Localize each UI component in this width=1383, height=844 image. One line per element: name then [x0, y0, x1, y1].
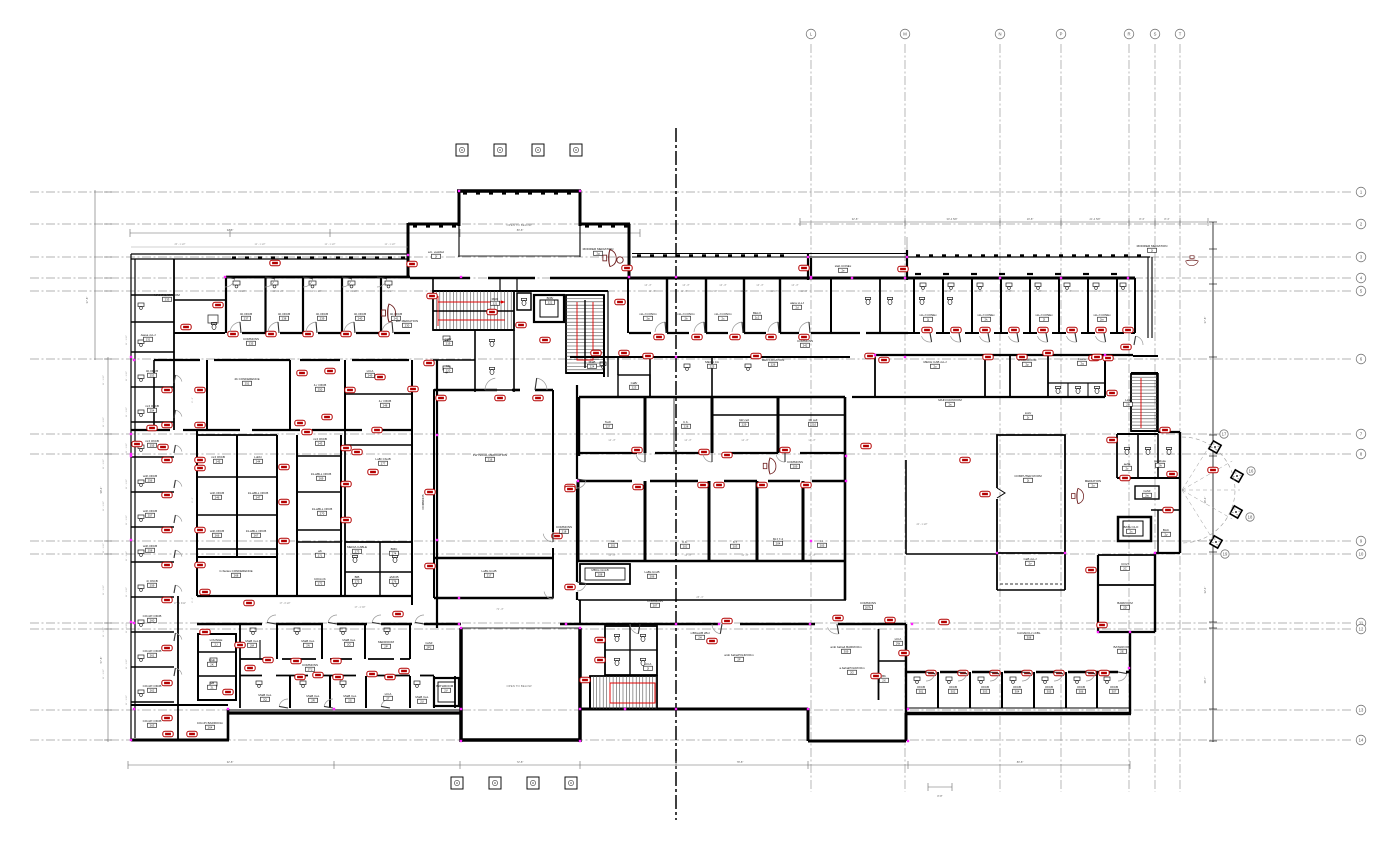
svg-text:11' - 1 1/2": 11' - 1 1/2" — [126, 479, 128, 489]
svg-text:72' - 8": 72' - 8" — [496, 609, 503, 611]
svg-text:2K: 2K — [210, 663, 214, 667]
svg-text:72'-8": 72'-8" — [517, 760, 524, 764]
svg-text:249: 249 — [368, 374, 373, 378]
svg-text:2U: 2U — [420, 700, 424, 704]
svg-text:11' - 8": 11' - 8" — [945, 291, 952, 293]
svg-text:259: 259 — [150, 584, 155, 588]
svg-text:271: 271 — [318, 554, 323, 558]
svg-text:xLLJ CONCx: xLLJ CONCx — [639, 312, 657, 316]
svg-text:N: N — [998, 32, 1001, 37]
svg-text:8' - 0": 8' - 0" — [192, 497, 194, 503]
svg-text:mrJ OfiCB: mrJ OfiCB — [145, 404, 159, 408]
svg-text:CoMr: CoMr — [425, 641, 432, 645]
svg-text:203: 203 — [733, 545, 738, 549]
svg-text:10: 10 — [1359, 552, 1364, 557]
svg-text:LaBr CfxxB: LaBr CfxxB — [375, 457, 390, 461]
svg-text:C-Suites CONFERENCE: C-Suites CONFERENCE — [219, 569, 252, 573]
svg-text:14' - 8": 14' - 8" — [684, 555, 691, 557]
svg-text:240: 240 — [358, 317, 363, 321]
svg-text:219: 219 — [446, 342, 451, 346]
svg-text:a.b. vestibul: a.b. vestibul — [428, 250, 444, 254]
svg-text:28' - 0": 28' - 0" — [696, 597, 703, 599]
svg-text:26' - 1 1/2": 26' - 1 1/2" — [175, 244, 186, 246]
svg-text:13: 13 — [1359, 708, 1364, 713]
svg-text:MEDIATION: MEDIATION — [1085, 479, 1101, 483]
svg-text:amb bahaPOLIROOm: amb bahaPOLIROOm — [724, 653, 754, 657]
svg-text:258: 258 — [148, 549, 153, 553]
svg-text:PHYSICAL MEDICATION: PHYSICAL MEDICATION — [473, 453, 507, 457]
svg-text:207: 207 — [653, 604, 658, 608]
svg-text:12' - 1 1/2": 12' - 1 1/2" — [383, 291, 394, 293]
svg-text:InLwBLL OfiCB: InLwBLL OfiCB — [311, 472, 331, 476]
svg-text:308: 308 — [1027, 636, 1032, 640]
svg-text:COmPr OfiCB: COmPr OfiCB — [143, 649, 162, 653]
svg-text:xLLJ CONCx: xLLJ CONCx — [677, 312, 695, 316]
svg-text:242: 242 — [803, 344, 808, 348]
svg-text:78'-8": 78'-8" — [737, 760, 744, 764]
svg-text:12' - 1 1/2": 12' - 1 1/2" — [347, 291, 358, 293]
svg-text:COmPr BARROOm: COmPr BARROOm — [197, 721, 224, 725]
svg-text:COmPr OfiCB: COmPr OfiCB — [143, 684, 162, 688]
svg-text:11' - 1 1/2": 11' - 1 1/2" — [126, 335, 128, 345]
svg-text:275: 275 — [355, 580, 360, 584]
svg-text:14' - 8": 14' - 8" — [808, 555, 815, 557]
svg-text:12' - 1 1/2": 12' - 1 1/2" — [255, 244, 266, 246]
svg-text:11' - 1 1/2": 11' - 1 1/2" — [126, 515, 128, 525]
svg-text:12: 12 — [1359, 627, 1364, 632]
svg-text:217: 217 — [487, 574, 492, 578]
svg-text:COMMONS: COMMONS — [243, 337, 259, 341]
svg-text:13' - 8": 13' - 8" — [791, 285, 798, 287]
svg-text:12' - 1 1/2": 12' - 1 1/2" — [325, 244, 336, 246]
svg-text:LaBs UnxB: LaBs UnxB — [644, 570, 659, 574]
svg-text:Tech: Tech — [605, 420, 612, 424]
svg-text:GR cell: GR cell — [739, 418, 749, 422]
svg-text:COMMONS: COMMONS — [556, 525, 572, 529]
svg-text:11' - 1 1/2": 11' - 1 1/2" — [126, 371, 128, 381]
svg-text:220: 220 — [446, 369, 451, 373]
svg-text:16: 16 — [1249, 469, 1254, 474]
svg-text:MiaB: MiaB — [589, 360, 596, 364]
svg-text:2d: 2d — [795, 306, 799, 310]
svg-text:2P2: 2P2 — [427, 646, 432, 650]
svg-text:with OfiCB: with OfiCB — [210, 529, 224, 533]
svg-text:COMMONS: COMMONS — [302, 663, 318, 667]
svg-text:246: 246 — [215, 496, 220, 500]
svg-text:BAC: BAC — [1163, 528, 1170, 532]
svg-text:LICA: LICA — [895, 637, 902, 641]
svg-text:a.bahaPOLIROOm: a.bahaPOLIROOm — [839, 666, 865, 670]
svg-text:251: 251 — [245, 382, 250, 386]
svg-text:225: 225 — [710, 365, 715, 369]
svg-text:11' - 1 1/2": 11' - 1 1/2" — [103, 375, 105, 385]
svg-text:11' - 1 1/2": 11' - 1 1/2" — [103, 627, 105, 637]
svg-text:8'-8": 8'-8" — [937, 794, 942, 798]
svg-text:32'-8": 32'-8" — [227, 760, 234, 764]
svg-text:243: 243 — [318, 442, 323, 446]
svg-text:226: 226 — [771, 363, 776, 367]
svg-text:MrJ 7-4: MrJ 7-4 — [773, 537, 783, 541]
svg-text:12' - 1 1/2": 12' - 1 1/2" — [273, 291, 284, 293]
svg-text:BATH CLO: BATH CLO — [1124, 525, 1139, 529]
svg-text:11' - 8": 11' - 8" — [801, 291, 808, 293]
svg-text:2E: 2E — [1120, 650, 1124, 654]
svg-text:237: 237 — [244, 317, 249, 321]
svg-text:slab CONEx: slab CONEx — [835, 264, 852, 268]
svg-text:248: 248 — [383, 404, 388, 408]
svg-text:256: 256 — [148, 479, 153, 483]
svg-text:17' - 4 7/2": 17' - 4 7/2" — [355, 607, 366, 609]
svg-text:301: 301 — [919, 690, 924, 694]
svg-text:Club: Club — [209, 658, 216, 662]
svg-text:Lishr: Lishr — [1025, 411, 1032, 415]
svg-text:aefla: aefla — [1124, 462, 1131, 466]
svg-text:MODIfiER MEDIATION: MODIfiER MEDIATION — [1137, 244, 1168, 248]
svg-text:12' - 1 1/2": 12' - 1 1/2" — [235, 291, 246, 293]
svg-text:21'-4 5/8": 21'-4 5/8" — [1090, 217, 1101, 221]
svg-text:57'-8": 57'-8" — [99, 657, 103, 664]
svg-text:277: 277 — [381, 462, 386, 466]
svg-text:i.i.: i.i. — [821, 539, 824, 543]
svg-text:228: 228 — [684, 425, 689, 429]
svg-text:207b: 207b — [865, 606, 872, 610]
svg-text:MiaB CeL: MiaB CeL — [258, 693, 272, 697]
svg-text:mrJ OfiCB: mrJ OfiCB — [145, 439, 159, 443]
svg-text:2I: 2I — [647, 667, 650, 671]
svg-text:2B: 2B — [1126, 403, 1130, 407]
svg-text:306: 306 — [1079, 690, 1084, 694]
svg-text:264: 264 — [208, 726, 213, 730]
svg-text:COMMONS: COMMONS — [647, 599, 663, 603]
svg-text:37'-8": 37'-8" — [85, 297, 89, 304]
svg-text:273: 273 — [355, 550, 360, 554]
svg-text:245: 245 — [216, 460, 221, 464]
svg-text:MiaB CeL: MiaB CeL — [342, 638, 356, 642]
svg-text:MAINT BARROOM: MAINT BARROOM — [154, 293, 180, 297]
svg-text:11' - 1 1/2": 11' - 1 1/2" — [126, 551, 128, 561]
svg-text:36'-7": 36'-7" — [1203, 677, 1207, 684]
svg-text:13' - 8": 13' - 8" — [719, 285, 726, 287]
svg-text:vestibule: vestibule — [1154, 459, 1166, 463]
svg-text:17: 17 — [1222, 432, 1227, 437]
svg-text:4b OfiCB: 4b OfiCB — [240, 312, 252, 316]
svg-text:2t: 2t — [1027, 479, 1030, 483]
svg-text:BriBr: BriBr — [547, 296, 554, 300]
svg-text:Jassa xLLJ: Jassa xLLJ — [140, 333, 156, 337]
svg-text:COMMONS: COMMONS — [421, 494, 425, 509]
svg-text:11' - 1 1/2": 11' - 1 1/2" — [103, 501, 105, 511]
svg-text:2j: 2j — [927, 318, 930, 322]
svg-text:2F: 2F — [737, 658, 741, 662]
svg-text:2M: 2M — [250, 644, 255, 648]
svg-text:250: 250 — [318, 388, 323, 392]
svg-text:8'-4": 8'-4" — [1139, 217, 1144, 221]
svg-text:BELO: BELO — [753, 311, 762, 315]
svg-text:OfiCB: OfiCB — [1077, 685, 1085, 689]
svg-text:LICA: LICA — [645, 662, 652, 666]
svg-text:11' - 8": 11' - 8" — [1095, 291, 1102, 293]
svg-text:4-r OfiCB: 4-r OfiCB — [379, 399, 392, 403]
svg-text:OPEN TO BELOW: OPEN TO BELOW — [506, 223, 531, 227]
svg-text:InLwBLL OfiCB: InLwBLL OfiCB — [312, 507, 332, 511]
svg-text:BMC: BMC — [391, 547, 399, 551]
svg-text:COMMONS: COMMONS — [860, 601, 876, 605]
svg-text:OfiCB: OfiCB — [1045, 685, 1053, 689]
svg-text:R: R — [1127, 32, 1130, 37]
svg-text:COmPr OfiCB: COmPr OfiCB — [143, 614, 162, 618]
svg-text:204: 204 — [776, 542, 781, 546]
svg-text:12' - 1 1/2": 12' - 1 1/2" — [385, 244, 396, 246]
svg-text:MiaB CeL: MiaB CeL — [306, 694, 320, 698]
svg-text:2N: 2N — [306, 644, 310, 648]
svg-text:11' - 8": 11' - 8" — [1065, 291, 1072, 293]
svg-text:2H: 2H — [698, 636, 702, 640]
svg-text:2l: 2l — [1043, 318, 1046, 322]
svg-text:Csuite: Csuite — [1078, 357, 1087, 361]
svg-text:233: 233 — [165, 298, 170, 302]
svg-text:MiaB CeL: MiaB CeL — [415, 695, 429, 699]
svg-text:201: 201 — [611, 544, 616, 548]
svg-text:with OfiCB: with OfiCB — [143, 474, 157, 478]
svg-text:4b OfiCB: 4b OfiCB — [316, 312, 328, 316]
svg-text:8' - 0": 8' - 0" — [192, 597, 194, 603]
svg-text:309: 309 — [844, 650, 849, 654]
svg-text:12' - 1 1/2": 12' - 1 1/2" — [311, 291, 322, 293]
svg-text:4-r OfiCB: 4-r OfiCB — [314, 383, 327, 387]
svg-text:xrBbwxtB xBxl: xrBbwxtB xBxl — [690, 631, 710, 635]
svg-text:14' - 8": 14' - 8" — [608, 555, 615, 557]
svg-text:2o: 2o — [933, 365, 937, 369]
svg-text:221: 221 — [493, 302, 498, 306]
svg-text:17' - 8 1/2": 17' - 8 1/2" — [280, 603, 291, 605]
svg-text:14' - 8": 14' - 8" — [741, 555, 748, 557]
svg-text:13' - 8": 13' - 8" — [682, 285, 689, 287]
svg-text:304: 304 — [1015, 690, 1020, 694]
svg-text:260: 260 — [150, 619, 155, 623]
svg-text:2f: 2f — [435, 255, 438, 259]
svg-text:230: 230 — [405, 324, 410, 328]
svg-text:238: 238 — [282, 317, 287, 321]
svg-text:BATHROOM: BATHROOM — [1113, 645, 1131, 649]
svg-text:CaB xLLJ: CaB xLLJ — [1023, 557, 1037, 561]
svg-text:4b CONFERENCE: 4b CONFERENCE — [234, 377, 259, 381]
svg-text:11' - 1 1/2": 11' - 1 1/2" — [126, 659, 128, 669]
svg-text:98'-4": 98'-4" — [99, 487, 103, 494]
svg-text:303: 303 — [983, 690, 988, 694]
svg-text:mrJ OfiCB: mrJ OfiCB — [313, 437, 327, 441]
svg-text:LICA: LICA — [385, 692, 392, 696]
svg-text:xLLJ CONCx: xLLJ CONCx — [714, 312, 732, 316]
svg-text:205: 205 — [820, 544, 825, 548]
svg-text:bL: bL — [446, 364, 450, 368]
svg-text:11' - 1 1/2": 11' - 1 1/2" — [126, 695, 128, 705]
svg-text:80'-8": 80'-8" — [1017, 760, 1024, 764]
svg-text:19'-8": 19'-8" — [1027, 217, 1034, 221]
svg-text:229: 229 — [742, 423, 747, 427]
svg-text:CaBr: CaBr — [445, 337, 452, 341]
svg-text:2i: 2i — [1151, 249, 1154, 253]
svg-text:267: 267 — [254, 534, 259, 538]
svg-text:COmPr OfiCB: COmPr OfiCB — [143, 719, 162, 723]
svg-text:Lobbr: Lobbr — [254, 455, 262, 459]
svg-text:216: 216 — [488, 458, 493, 462]
svg-text:24' - 1 1/2": 24' - 1 1/2" — [917, 524, 928, 526]
svg-text:4b OfiCB: 4b OfiCB — [278, 312, 290, 316]
svg-text:b.b.: b.b. — [682, 540, 687, 544]
svg-text:OfiCB: OfiCB — [981, 685, 989, 689]
svg-text:37'-8": 37'-8" — [1203, 317, 1207, 324]
svg-text:253: 253 — [150, 374, 155, 378]
svg-text:4r OfiCB: 4r OfiCB — [146, 579, 158, 583]
svg-text:13' - 8": 13' - 8" — [644, 285, 651, 287]
svg-text:OPEN TO BELOW: OPEN TO BELOW — [506, 684, 531, 688]
svg-text:xLLJ CONEx: xLLJ CONEx — [1093, 313, 1111, 317]
svg-text:11' - 1 1/2": 11' - 1 1/2" — [103, 669, 105, 679]
svg-text:2T2: 2T2 — [308, 668, 313, 672]
svg-text:OfiCB: OfiCB — [917, 685, 925, 689]
svg-text:LICA: LICA — [367, 369, 374, 373]
svg-text:xLLJ CONEx: xLLJ CONEx — [977, 313, 995, 317]
svg-text:32'-8": 32'-8" — [852, 217, 859, 221]
svg-text:11' - 8": 11' - 8" — [1005, 291, 1012, 293]
svg-text:amb baha4 BARROOm: amb baha4 BARROOm — [830, 645, 862, 649]
svg-text:11' - 8": 11' - 8" — [649, 291, 656, 293]
svg-text:2210: 2210 — [810, 423, 817, 427]
svg-text:11' - 8": 11' - 8" — [771, 291, 778, 293]
svg-text:239: 239 — [320, 317, 325, 321]
svg-text:2q: 2q — [1080, 362, 1084, 366]
svg-text:11' - 8": 11' - 8" — [1035, 291, 1042, 293]
svg-text:235: 235 — [249, 342, 254, 346]
svg-text:xLLJ CONEx: xLLJ CONEx — [1035, 313, 1053, 317]
svg-text:MECH CA: MECH CA — [705, 360, 719, 364]
svg-text:11' - 8": 11' - 8" — [681, 291, 688, 293]
svg-text:11' - 8": 11' - 8" — [711, 291, 718, 293]
svg-text:2X: 2X — [882, 679, 886, 683]
svg-text:MODIfiER MEDIATION: MODIfiER MEDIATION — [583, 247, 614, 251]
svg-text:MiaB CeL: MiaB CeL — [343, 694, 357, 698]
svg-text:InLwBLL OfiCB: InLwBLL OfiCB — [248, 491, 268, 495]
svg-text:xLLJ CONEx: xLLJ CONEx — [919, 313, 937, 317]
svg-text:MEDROOM: MEDROOM — [378, 640, 395, 644]
svg-text:262: 262 — [150, 689, 155, 693]
svg-text:4b OfiCB: 4b OfiCB — [354, 312, 366, 316]
svg-text:11' - 1 1/2": 11' - 1 1/2" — [103, 585, 105, 595]
svg-text:alara xLLJ: alara xLLJ — [790, 301, 804, 305]
svg-text:COMMONS: COMMONS — [797, 339, 813, 343]
svg-text:2V: 2V — [444, 689, 448, 693]
svg-text:266: 266 — [215, 534, 220, 538]
svg-text:218: 218 — [562, 530, 567, 534]
svg-text:mrJ OfiCB: mrJ OfiCB — [211, 455, 225, 459]
svg-text:11' - 8": 11' - 8" — [975, 291, 982, 293]
svg-text:269: 269 — [319, 477, 324, 481]
svg-text:209: 209 — [793, 465, 798, 469]
svg-text:263: 263 — [150, 724, 155, 728]
svg-text:305: 305 — [1047, 690, 1052, 694]
svg-text:MiaB CeL: MiaB CeL — [301, 639, 315, 643]
svg-text:30'-4 5/8": 30'-4 5/8" — [947, 217, 958, 221]
svg-text:80'-8": 80'-8" — [517, 228, 524, 232]
svg-text:11' - 8": 11' - 8" — [741, 291, 748, 293]
svg-text:14' - 8": 14' - 8" — [741, 440, 748, 442]
svg-text:4b OfiCB: 4b OfiCB — [146, 369, 158, 373]
svg-text:8'-4": 8'-4" — [1164, 217, 1169, 221]
svg-text:307: 307 — [1112, 690, 1117, 694]
svg-text:2c2: 2c2 — [755, 316, 760, 320]
svg-text:MBCs CmLB: MBCs CmLB — [591, 568, 608, 572]
svg-text:MECH CAB xLLJ: MECH CAB xLLJ — [923, 360, 947, 364]
svg-text:bAOAbCLJ xCBL: bAOAbCLJ xCBL — [1017, 631, 1041, 635]
svg-text:BiB: BiB — [355, 575, 360, 579]
svg-text:Link: Link — [1125, 398, 1131, 402]
svg-text:with OfiCB: with OfiCB — [143, 544, 157, 548]
svg-text:268: 268 — [234, 574, 239, 578]
svg-text:13' - 8": 13' - 8" — [756, 285, 763, 287]
svg-text:2u: 2u — [1091, 484, 1095, 488]
svg-text:2A: 2A — [1158, 464, 1162, 468]
svg-text:2R: 2R — [311, 699, 315, 703]
svg-text:OfiCB: OfiCB — [1013, 685, 1021, 689]
svg-text:aMiCB: aMiCB — [389, 575, 398, 579]
svg-text:11' - 1 1/2": 11' - 1 1/2" — [126, 443, 128, 453]
svg-text:208: 208 — [598, 573, 603, 577]
svg-text:MAIN DAYROOM: MAIN DAYROOM — [938, 398, 962, 402]
svg-text:a.b. MEDIATION: a.b. MEDIATION — [396, 319, 418, 323]
svg-text:b.7: b.7 — [733, 540, 738, 544]
svg-text:11' - 1 1/2": 11' - 1 1/2" — [103, 417, 105, 427]
svg-text:274: 274 — [392, 552, 397, 556]
svg-text:244: 244 — [256, 460, 261, 464]
svg-text:BATHROOM 4: BATHROOM 4 — [436, 684, 456, 688]
svg-text:2e: 2e — [841, 269, 845, 273]
svg-text:COMPUTER ROOM: COMPUTER ROOM — [1014, 474, 1042, 478]
svg-text:2p: 2p — [1025, 363, 1029, 367]
svg-text:202: 202 — [683, 545, 688, 549]
svg-text:2T: 2T — [386, 697, 390, 701]
svg-text:CaBr: CaBr — [631, 381, 638, 385]
svg-text:LOUNGE: LOUNGE — [210, 638, 223, 642]
svg-text:17' - 1 3/12": 17' - 1 3/12" — [174, 603, 186, 605]
svg-text:2g: 2g — [596, 252, 600, 256]
svg-text:131: 131 — [146, 338, 151, 342]
svg-text:M: M — [903, 32, 907, 37]
svg-text:272: 272 — [318, 582, 323, 586]
svg-text:2r: 2r — [1027, 416, 1030, 420]
svg-text:Bb: Bb — [882, 674, 886, 678]
svg-text:11' - 1 1/2": 11' - 1 1/2" — [126, 623, 128, 633]
svg-text:2D: 2D — [1123, 606, 1127, 610]
svg-text:14' - 8": 14' - 8" — [808, 440, 815, 442]
svg-text:32'-8": 32'-8" — [227, 228, 234, 232]
svg-text:276: 276 — [392, 580, 397, 584]
svg-text:WORKROOM: WORKROOM — [1018, 358, 1037, 362]
svg-text:MAR: MAR — [492, 297, 500, 301]
svg-text:11' - 1 1/2": 11' - 1 1/2" — [126, 587, 128, 597]
svg-text:MiaB CeL: MiaB CeL — [245, 639, 259, 643]
svg-text:P: P — [1060, 32, 1063, 37]
svg-text:11' - 1 1/2": 11' - 1 1/2" — [126, 407, 128, 417]
svg-text:COMMONS: COMMONS — [787, 460, 803, 464]
svg-text:14' - 8": 14' - 8" — [684, 440, 691, 442]
svg-text:255: 255 — [150, 444, 155, 448]
svg-text:14' - 8": 14' - 8" — [608, 440, 615, 442]
svg-text:11' - 1 1/2": 11' - 1 1/2" — [103, 459, 105, 469]
svg-text:S: S — [1154, 32, 1157, 37]
svg-text:OfiCB: OfiCB — [1110, 685, 1118, 689]
svg-text:11' - 1 1/2": 11' - 1 1/2" — [103, 543, 105, 553]
svg-text:4b OfiCB: 4b OfiCB — [390, 312, 402, 316]
